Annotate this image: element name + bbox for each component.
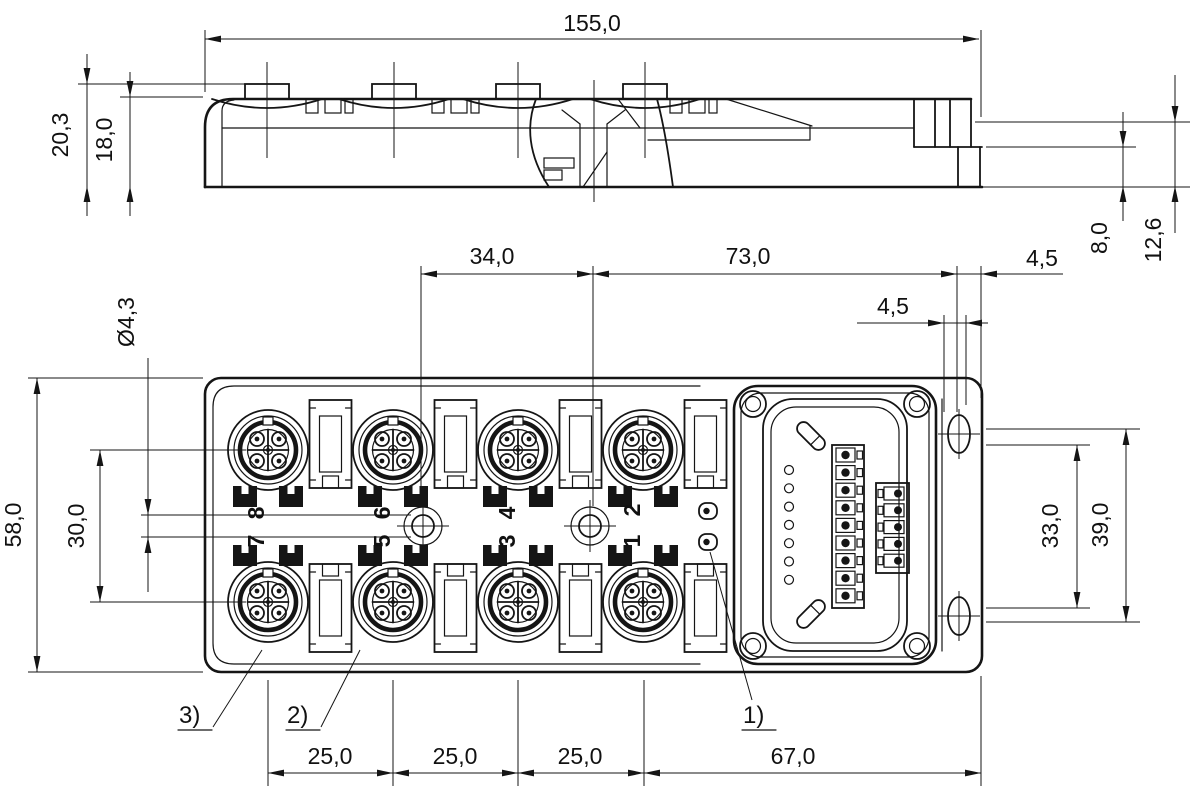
technical-drawing: 155,0 20,3 18,0 8,0 12,6 34,0 73,0 4,5 4… <box>0 0 1200 800</box>
cover-area <box>734 386 936 664</box>
port-number-3: 3 <box>494 535 520 548</box>
side-view <box>78 30 1190 233</box>
dim-row-spacing: 30,0 <box>63 504 89 549</box>
dim-pitch-2: 25,0 <box>433 743 478 769</box>
dim-body-width: 58,0 <box>0 503 26 548</box>
flange-tab <box>938 399 980 651</box>
dim-body-height: 18,0 <box>91 118 117 163</box>
terminal-block-9 <box>836 448 863 603</box>
dim-end-section: 67,0 <box>771 743 816 769</box>
callouts: 3) 2) 1) <box>179 702 764 729</box>
dim-flange-offset: 12,6 <box>1140 218 1166 263</box>
dim-step-height: 8,0 <box>1086 222 1112 254</box>
terminal-block-5 <box>878 487 904 567</box>
port-number-4: 4 <box>494 506 520 519</box>
dim-hole-spacing: 34,0 <box>470 243 515 269</box>
side-dim-lines <box>78 30 1175 233</box>
dim-tab-offset-lower: 4,5 <box>877 293 909 319</box>
port-number-1: 1 <box>619 534 645 547</box>
dim-overall-length: 155,0 <box>563 10 621 36</box>
dim-total-height: 20,3 <box>47 113 73 158</box>
dim-pitch-3: 25,0 <box>558 743 603 769</box>
port-number-7: 7 <box>243 535 269 548</box>
dim-hole-to-end: 73,0 <box>726 243 771 269</box>
port-number-2: 2 <box>619 504 645 517</box>
drawing-page: 155,0 20,3 18,0 8,0 12,6 34,0 73,0 4,5 4… <box>0 0 1200 800</box>
port-number-6: 6 <box>369 507 395 520</box>
callout-2: 2) <box>287 702 308 729</box>
dim-pitch-1: 25,0 <box>308 743 353 769</box>
dim-tab-offset-upper: 4,5 <box>1026 245 1058 271</box>
port-number-8: 8 <box>243 506 269 519</box>
led-column <box>785 466 794 585</box>
dimension-texts: 155,0 20,3 18,0 8,0 12,6 34,0 73,0 4,5 4… <box>0 10 1166 769</box>
callout-1: 1) <box>743 702 764 729</box>
dim-mounting-hole-dia: Ø4,3 <box>113 297 139 347</box>
dim-slot-inner: 33,0 <box>1037 504 1063 549</box>
port-number-5: 5 <box>369 534 395 547</box>
callout-3: 3) <box>179 702 200 729</box>
dim-slot-outer: 39,0 <box>1087 503 1113 548</box>
